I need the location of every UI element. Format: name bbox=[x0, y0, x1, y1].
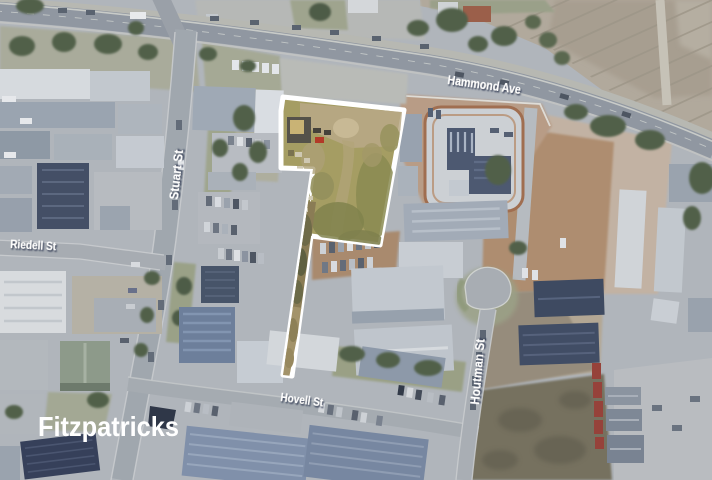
svg-text:Riedell St: Riedell St bbox=[10, 239, 57, 253]
svg-text:Fitzpatricks: Fitzpatricks bbox=[38, 411, 179, 442]
